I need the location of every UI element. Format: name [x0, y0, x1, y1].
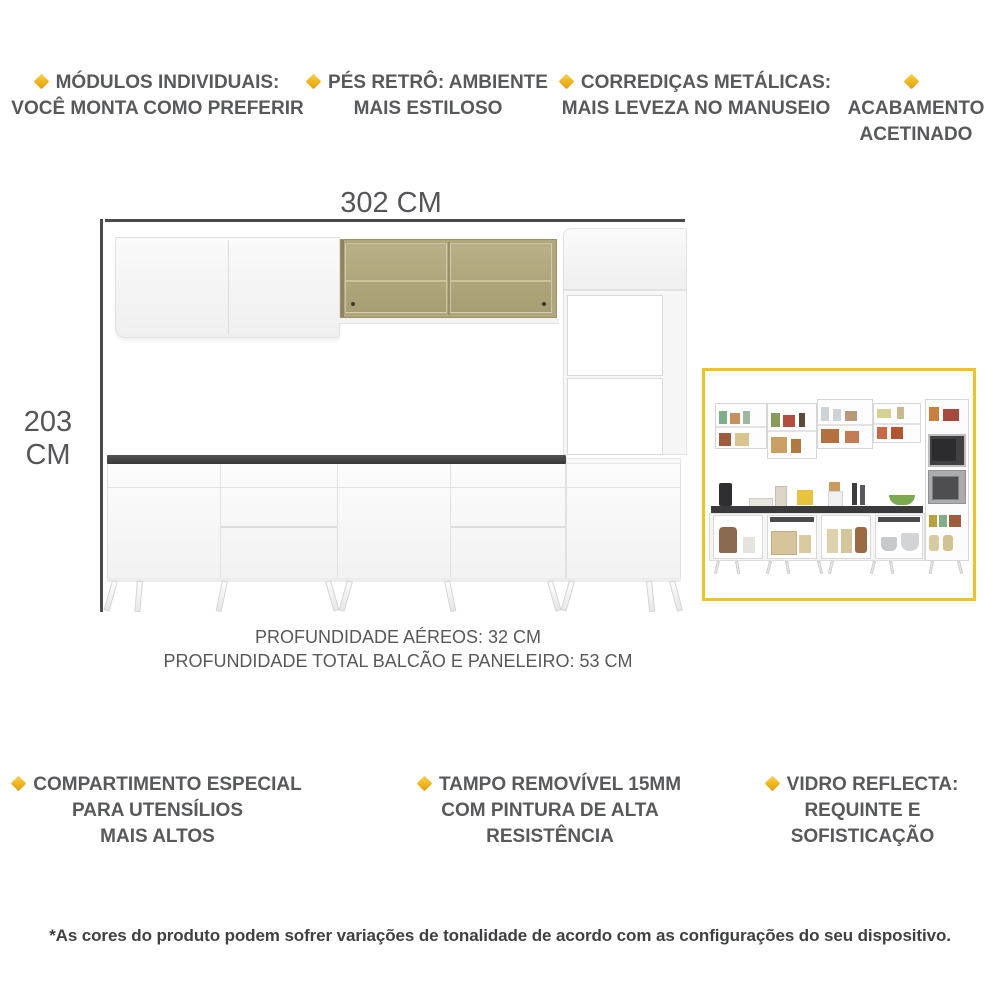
shelf-board	[716, 426, 766, 428]
inset-item	[929, 535, 939, 551]
sliding-glass-door	[345, 243, 447, 313]
door-handle	[351, 302, 355, 306]
inset-item	[821, 407, 829, 421]
inset-microwave	[928, 434, 966, 467]
base-divider	[565, 464, 567, 582]
glass-door-rail	[346, 280, 446, 282]
inset-item	[929, 407, 939, 421]
retro-leg	[325, 580, 339, 611]
inset-item	[929, 515, 937, 527]
wall-cabinet-drawing	[115, 237, 340, 338]
cabinet-edge	[341, 240, 344, 317]
depth-total-text: PROFUNDIDADE TOTAL BALCÃO E PANELEIRO: 5…	[148, 649, 648, 673]
retro-leg	[444, 580, 456, 612]
base-divider	[450, 464, 451, 582]
retro-leg	[104, 580, 118, 611]
inset-item	[845, 411, 857, 421]
retro-leg	[669, 580, 683, 611]
feature-line: VIDRO REFLECTA:	[760, 772, 965, 798]
inset-retro-leg	[929, 561, 934, 574]
door-handle	[542, 302, 546, 306]
base-bottom-shadow	[107, 578, 681, 582]
shelf-board	[768, 430, 816, 432]
inset-item	[841, 529, 852, 553]
color-disclaimer: *As cores do produto podem sofrer variaç…	[0, 926, 1000, 946]
inset-item	[939, 515, 947, 527]
glass-door-divider	[448, 242, 450, 315]
inset-item	[891, 427, 903, 439]
inset-tray-slot	[770, 517, 814, 522]
feature-text: PARA UTENSÍLIOS	[10, 798, 305, 824]
feature-text: MAIS ALTOS	[10, 824, 305, 850]
base-divider	[220, 464, 221, 582]
inset-item	[877, 409, 891, 418]
retro-leg	[339, 580, 353, 611]
diamond-bullet-icon	[904, 74, 920, 90]
tall-cabinet-top-door	[563, 228, 687, 290]
glass-door-rail	[451, 280, 551, 282]
diamond-bullet-icon	[33, 74, 49, 90]
inset-retro-leg	[785, 561, 790, 574]
feature-line: MÓDULOS INDIVIDUAIS:	[5, 70, 310, 96]
cabinet-door-divider	[228, 240, 229, 335]
inset-retro-leg	[870, 561, 876, 574]
feature-pes-retro: PÉS RETRÔ: AMBIENTE MAIS ESTILOSO	[308, 70, 548, 122]
inset-oven	[928, 470, 966, 504]
retro-leg	[547, 580, 561, 611]
styled-kitchen-inset-photo	[702, 368, 976, 601]
feature-text: RESISTÊNCIA	[405, 824, 695, 850]
depth-annotations: PROFUNDIDADE AÉREOS: 32 CM PROFUNDIDADE …	[148, 625, 648, 673]
oven-window	[932, 476, 959, 500]
inset-item	[799, 413, 805, 427]
glass-wall-cabinet-drawing	[340, 239, 557, 318]
feature-text: CORREDIÇAS METÁLICAS:	[581, 72, 831, 93]
feature-text: ACABAMENTO	[848, 98, 985, 119]
sliding-glass-door	[450, 243, 552, 313]
feature-text: ACETINADO	[838, 122, 994, 148]
feature-line: TAMPO REMOVÍVEL 15MM	[405, 772, 695, 798]
inset-pot	[901, 533, 919, 551]
feature-text: COM PINTURA DE ALTA	[405, 798, 695, 824]
inset-retro-leg	[766, 561, 772, 574]
feature-text: MAIS ESTILOSO	[308, 96, 548, 122]
inset-item	[743, 411, 750, 424]
inset-item	[833, 409, 841, 421]
feature-text: COMPARTIMENTO ESPECIAL	[33, 774, 301, 795]
height-dimension-line	[100, 219, 103, 612]
feature-text: SOFISTICAÇÃO	[760, 824, 965, 850]
inset-retro-leg	[817, 561, 823, 574]
base-cabinet-drawing	[107, 464, 681, 582]
retro-leg	[216, 580, 228, 612]
feature-text: TAMPO REMOVÍVEL 15MM	[439, 774, 681, 795]
feature-text: VIDRO REFLECTA:	[787, 774, 959, 795]
drawer-line	[221, 526, 337, 528]
inset-item	[799, 535, 811, 553]
inset-item	[791, 439, 801, 453]
inset-item	[845, 431, 859, 443]
shelf-board	[818, 424, 872, 426]
inset-fruit-bowl	[889, 495, 915, 505]
countertop-drawing	[107, 455, 566, 464]
inset-item	[771, 413, 780, 427]
inset-item	[719, 411, 727, 424]
inset-item	[771, 437, 787, 453]
diamond-bullet-icon	[417, 776, 433, 792]
depth-aereos-text: PROFUNDIDADE AÉREOS: 32 CM	[148, 625, 648, 649]
shelf-board	[874, 423, 920, 425]
feature-acabamento-acetinado: ACABAMENTO ACETINADO	[838, 70, 994, 148]
inset-item	[897, 407, 904, 419]
inset-grinder	[852, 483, 857, 505]
glass-cabinet-bottom-panel	[338, 318, 559, 324]
feature-corredicas-metalicas: CORREDIÇAS METÁLICAS: MAIS LEVEZA NO MAN…	[552, 70, 840, 122]
inset-item	[775, 486, 787, 507]
inset-item	[743, 537, 755, 553]
diamond-bullet-icon	[11, 776, 27, 792]
inset-item	[877, 427, 887, 439]
feature-vidro-reflecta: VIDRO REFLECTA: REQUINTE E SOFISTICAÇÃO	[760, 772, 965, 850]
feature-line: PÉS RETRÔ: AMBIENTE	[308, 70, 548, 96]
inset-item	[827, 529, 838, 553]
feature-compartimento-especial: COMPARTIMENTO ESPECIAL PARA UTENSÍLIOS M…	[10, 772, 305, 850]
retro-leg	[561, 580, 575, 611]
feature-modulos-individuais: MÓDULOS INDIVIDUAIS: VOCÊ MONTA COMO PRE…	[5, 70, 310, 122]
inset-item	[730, 413, 740, 424]
feature-text: VOCÊ MONTA COMO PREFERIR	[5, 96, 310, 122]
inset-grinder	[860, 485, 865, 505]
microwave-window	[932, 439, 956, 461]
product-infographic: MÓDULOS INDIVIDUAIS: VOCÊ MONTA COMO PRE…	[0, 0, 1000, 1000]
width-dimension-line	[105, 219, 685, 222]
feature-text: MAIS LEVEZA NO MANUSEIO	[552, 96, 840, 122]
inset-tray-slot	[878, 517, 920, 522]
inset-item	[719, 433, 731, 446]
inset-stand-mixer	[719, 527, 737, 553]
feature-text: PÉS RETRÔ: AMBIENTE	[328, 72, 548, 93]
inset-item	[735, 433, 749, 446]
inset-retro-leg	[957, 561, 963, 574]
inset-countertop	[711, 506, 923, 513]
inset-item	[783, 415, 795, 427]
retro-leg	[646, 581, 655, 612]
base-divider	[337, 464, 338, 582]
inset-item	[943, 535, 953, 551]
inset-item	[771, 531, 797, 555]
inset-retro-leg	[889, 561, 894, 574]
inset-retro-leg	[828, 561, 834, 574]
diamond-bullet-icon	[764, 776, 780, 792]
inset-item	[949, 515, 961, 527]
diamond-bullet-icon	[559, 74, 575, 90]
inset-retro-leg	[735, 561, 740, 574]
inset-pot	[881, 537, 897, 551]
height-dimension-label: 203 CM	[0, 406, 98, 472]
inset-item	[797, 490, 813, 505]
drawer-line	[451, 526, 565, 528]
width-dimension-label: 302 CM	[311, 187, 471, 220]
open-shelf-compartment	[567, 295, 663, 376]
inset-item	[943, 409, 959, 421]
feature-text: MÓDULOS INDIVIDUAIS:	[56, 72, 280, 93]
feature-line: CORREDIÇAS METÁLICAS:	[552, 70, 840, 96]
inset-coffee-maker	[719, 483, 732, 506]
feature-line: ACABAMENTO	[838, 70, 994, 122]
diamond-bullet-icon	[306, 74, 322, 90]
feature-tampo-removivel: TAMPO REMOVÍVEL 15MM COM PINTURA DE ALTA…	[405, 772, 695, 850]
inset-item	[821, 429, 839, 443]
feature-line: COMPARTIMENTO ESPECIAL	[10, 772, 305, 798]
base-top-rail-line	[107, 487, 681, 488]
inset-utensils	[829, 482, 840, 491]
inset-item	[855, 527, 867, 553]
open-shelf-compartment	[567, 378, 663, 455]
inset-retro-leg	[714, 561, 720, 574]
retro-leg	[134, 581, 143, 612]
inset-utensil-cup	[828, 491, 843, 507]
feature-text: REQUINTE E	[760, 798, 965, 824]
